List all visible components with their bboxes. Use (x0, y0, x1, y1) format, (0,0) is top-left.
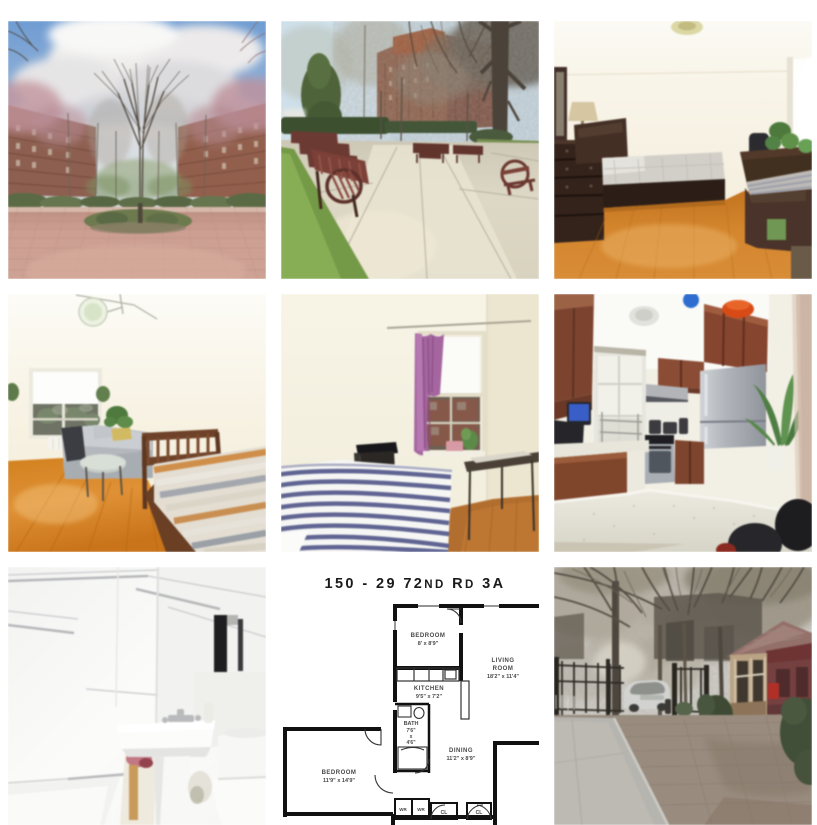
svg-text:KITCHEN: KITCHEN (414, 686, 444, 692)
svg-text:BEDROOM: BEDROOM (411, 633, 446, 639)
svg-text:BEDROOM: BEDROOM (322, 770, 357, 776)
svg-text:8' x 8'9": 8' x 8'9" (418, 641, 439, 647)
svg-text:ROOM: ROOM (493, 666, 514, 672)
svg-text:WR: WR (399, 807, 407, 812)
svg-text:LIVING: LIVING (491, 658, 514, 664)
svg-text:WR: WR (417, 807, 425, 812)
svg-text:11'2" x 8'9": 11'2" x 8'9" (447, 756, 476, 762)
svg-text:150 - 29 72ND RD 3A: 150 - 29 72ND RD 3A (325, 576, 506, 592)
svg-text:9'5" x 7'2": 9'5" x 7'2" (416, 694, 443, 700)
svg-text:DINING: DINING (449, 748, 473, 754)
svg-text:4'6": 4'6" (406, 740, 416, 746)
svg-text:CL: CL (476, 810, 483, 816)
svg-text:CL: CL (441, 810, 448, 816)
svg-text:11'9" x 14'9": 11'9" x 14'9" (323, 778, 355, 784)
svg-text:BATH: BATH (404, 721, 419, 727)
svg-text:18'2" x 11'4": 18'2" x 11'4" (487, 674, 519, 680)
